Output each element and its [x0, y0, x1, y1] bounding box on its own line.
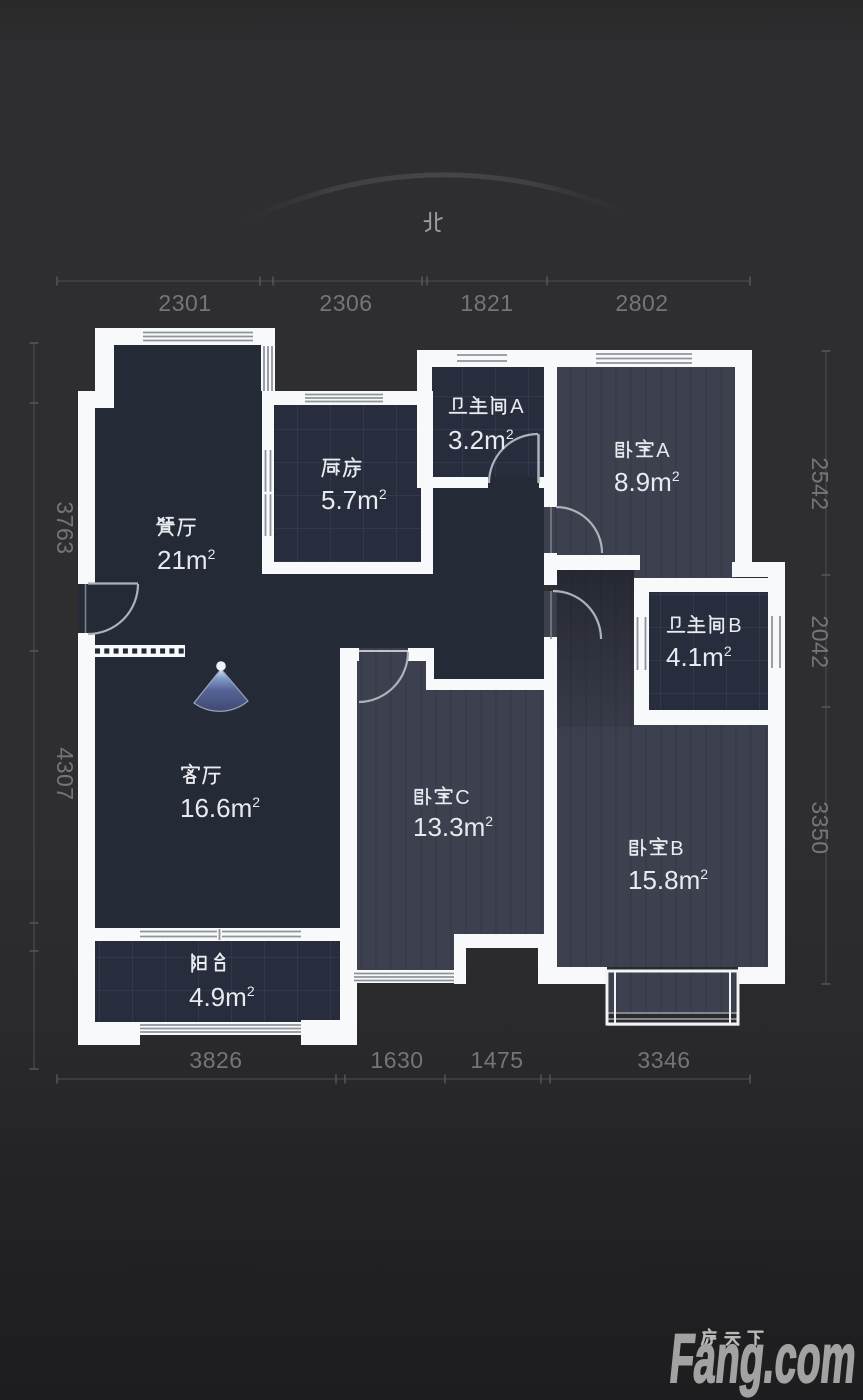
- svg-text:1630: 1630: [370, 1047, 423, 1073]
- svg-text:4.9m2: 4.9m2: [189, 982, 255, 1012]
- svg-text:1475: 1475: [470, 1047, 523, 1073]
- svg-text:16.6m2: 16.6m2: [180, 793, 260, 823]
- svg-text:Fang.com: Fang.com: [667, 1320, 860, 1397]
- svg-text:5.7m2: 5.7m2: [321, 485, 387, 515]
- svg-text:3.2m2: 3.2m2: [448, 425, 514, 455]
- svg-text:1821: 1821: [460, 290, 513, 316]
- svg-text:3350: 3350: [807, 801, 833, 854]
- svg-text:2306: 2306: [319, 290, 372, 316]
- svg-text:C: C: [455, 787, 469, 809]
- svg-text:13.3m2: 13.3m2: [413, 812, 493, 842]
- svg-text:A: A: [510, 396, 524, 418]
- svg-text:2802: 2802: [615, 290, 668, 316]
- svg-text:A: A: [656, 440, 670, 462]
- svg-text:B: B: [670, 838, 683, 860]
- svg-text:2301: 2301: [158, 290, 211, 316]
- svg-text:3346: 3346: [637, 1047, 690, 1073]
- svg-text:21m2: 21m2: [157, 545, 216, 575]
- svg-text:4.1m2: 4.1m2: [666, 642, 732, 672]
- svg-text:8.9m2: 8.9m2: [614, 467, 680, 497]
- svg-text:2542: 2542: [807, 457, 833, 510]
- svg-text:2042: 2042: [807, 615, 833, 668]
- svg-text:3826: 3826: [189, 1047, 242, 1073]
- svg-text:15.8m2: 15.8m2: [628, 865, 708, 895]
- svg-text:3763: 3763: [52, 501, 78, 554]
- svg-text:B: B: [728, 615, 741, 637]
- svg-text:4307: 4307: [52, 747, 78, 800]
